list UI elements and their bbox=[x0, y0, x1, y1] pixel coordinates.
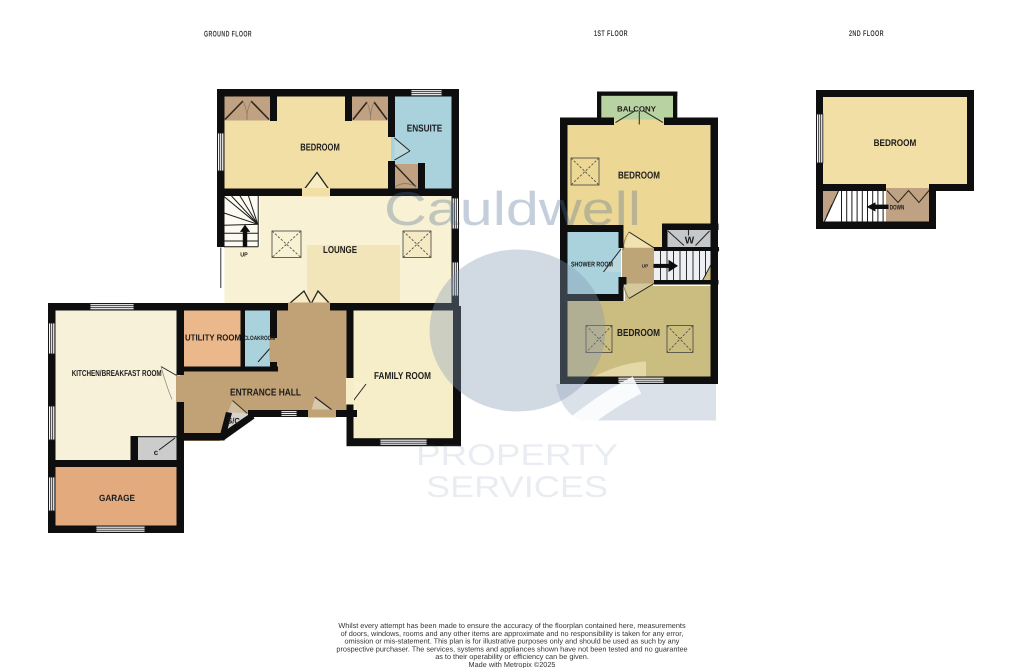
svg-text:Cauldwell: Cauldwell bbox=[384, 183, 641, 236]
svg-text:DOWN: DOWN bbox=[890, 205, 905, 212]
svg-text:SERVICES: SERVICES bbox=[426, 471, 608, 504]
svg-text:GROUND FLOOR: GROUND FLOOR bbox=[204, 30, 252, 39]
svg-text:PROPERTY: PROPERTY bbox=[416, 439, 618, 472]
svg-text:UP: UP bbox=[642, 263, 648, 268]
svg-text:ENTRANCE HALL: ENTRANCE HALL bbox=[230, 388, 301, 399]
svg-text:BALCONY: BALCONY bbox=[617, 105, 656, 114]
svg-text:BEDROOM: BEDROOM bbox=[617, 328, 660, 339]
svg-text:BEDROOM: BEDROOM bbox=[300, 143, 340, 154]
svg-text:UTILITY ROOM: UTILITY ROOM bbox=[185, 332, 241, 342]
svg-text:BEDROOM: BEDROOM bbox=[874, 138, 917, 149]
svg-text:LOUNGE: LOUNGE bbox=[323, 245, 357, 256]
svg-text:1ST FLOOR: 1ST FLOOR bbox=[594, 29, 628, 38]
svg-text:KITCHEN/BREAKFAST ROOM: KITCHEN/BREAKFAST ROOM bbox=[72, 368, 162, 378]
svg-text:ENSUITE: ENSUITE bbox=[407, 124, 443, 135]
svg-text:BEDROOM: BEDROOM bbox=[618, 171, 660, 182]
svg-text:CLOAKROOM: CLOAKROOM bbox=[244, 335, 276, 342]
svg-text:Made with Metropix ©2025: Made with Metropix ©2025 bbox=[469, 660, 556, 668]
svg-text:SHOWER ROOM: SHOWER ROOM bbox=[571, 261, 613, 268]
svg-text:2ND FLOOR: 2ND FLOOR bbox=[849, 29, 884, 38]
svg-text:GARAGE: GARAGE bbox=[99, 493, 135, 503]
svg-text:c: c bbox=[154, 448, 159, 457]
svg-text:UP: UP bbox=[240, 252, 248, 259]
svg-text:S/C: S/C bbox=[227, 417, 240, 426]
svg-text:W: W bbox=[685, 236, 695, 247]
svg-text:FAMILY ROOM: FAMILY ROOM bbox=[374, 371, 431, 382]
